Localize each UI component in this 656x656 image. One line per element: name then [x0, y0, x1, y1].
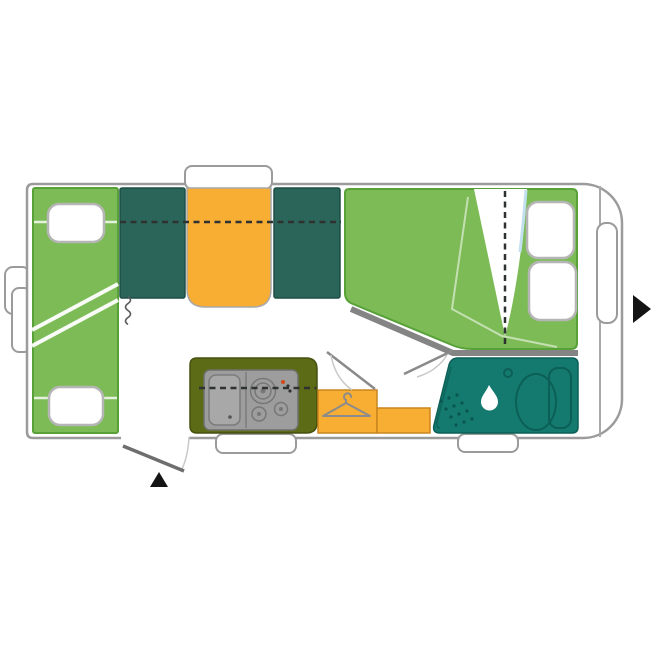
- bed-pillow-top: [527, 202, 574, 258]
- kitchen-sink: [209, 375, 240, 425]
- bed-pillow-bottom: [529, 262, 576, 320]
- dinette-table: [187, 188, 271, 307]
- washroom: [434, 358, 578, 433]
- entrance-arrow-icon: [150, 472, 168, 487]
- front-locker-panel: [597, 223, 617, 323]
- floorplan-canvas: [0, 0, 656, 656]
- kitchen-block: [190, 358, 317, 433]
- entrance-door-leaf: [123, 446, 184, 471]
- step-cabinet: [377, 408, 430, 433]
- sink-drain-dot: [228, 415, 232, 419]
- window-tab-washroom: [458, 434, 518, 452]
- wardrobe: [318, 390, 377, 433]
- sofa-pillow-top: [48, 204, 104, 242]
- window-bay-top: [185, 166, 272, 189]
- window-tab-kitchen: [216, 434, 296, 453]
- sofa-pillow-bottom: [49, 387, 103, 425]
- dinette-seat-right: [274, 188, 340, 298]
- direction-arrow-icon: [633, 295, 651, 323]
- entrance-door: [123, 437, 189, 487]
- burner-indicator-red: [281, 380, 285, 384]
- dinette: [120, 188, 341, 307]
- side-sofa-bed: [32, 188, 118, 433]
- wardrobe-cabinet: [318, 390, 377, 433]
- dinette-seat-left: [120, 188, 185, 298]
- caravan-floorplan: [0, 0, 656, 656]
- entrance-door-opening: [121, 431, 189, 442]
